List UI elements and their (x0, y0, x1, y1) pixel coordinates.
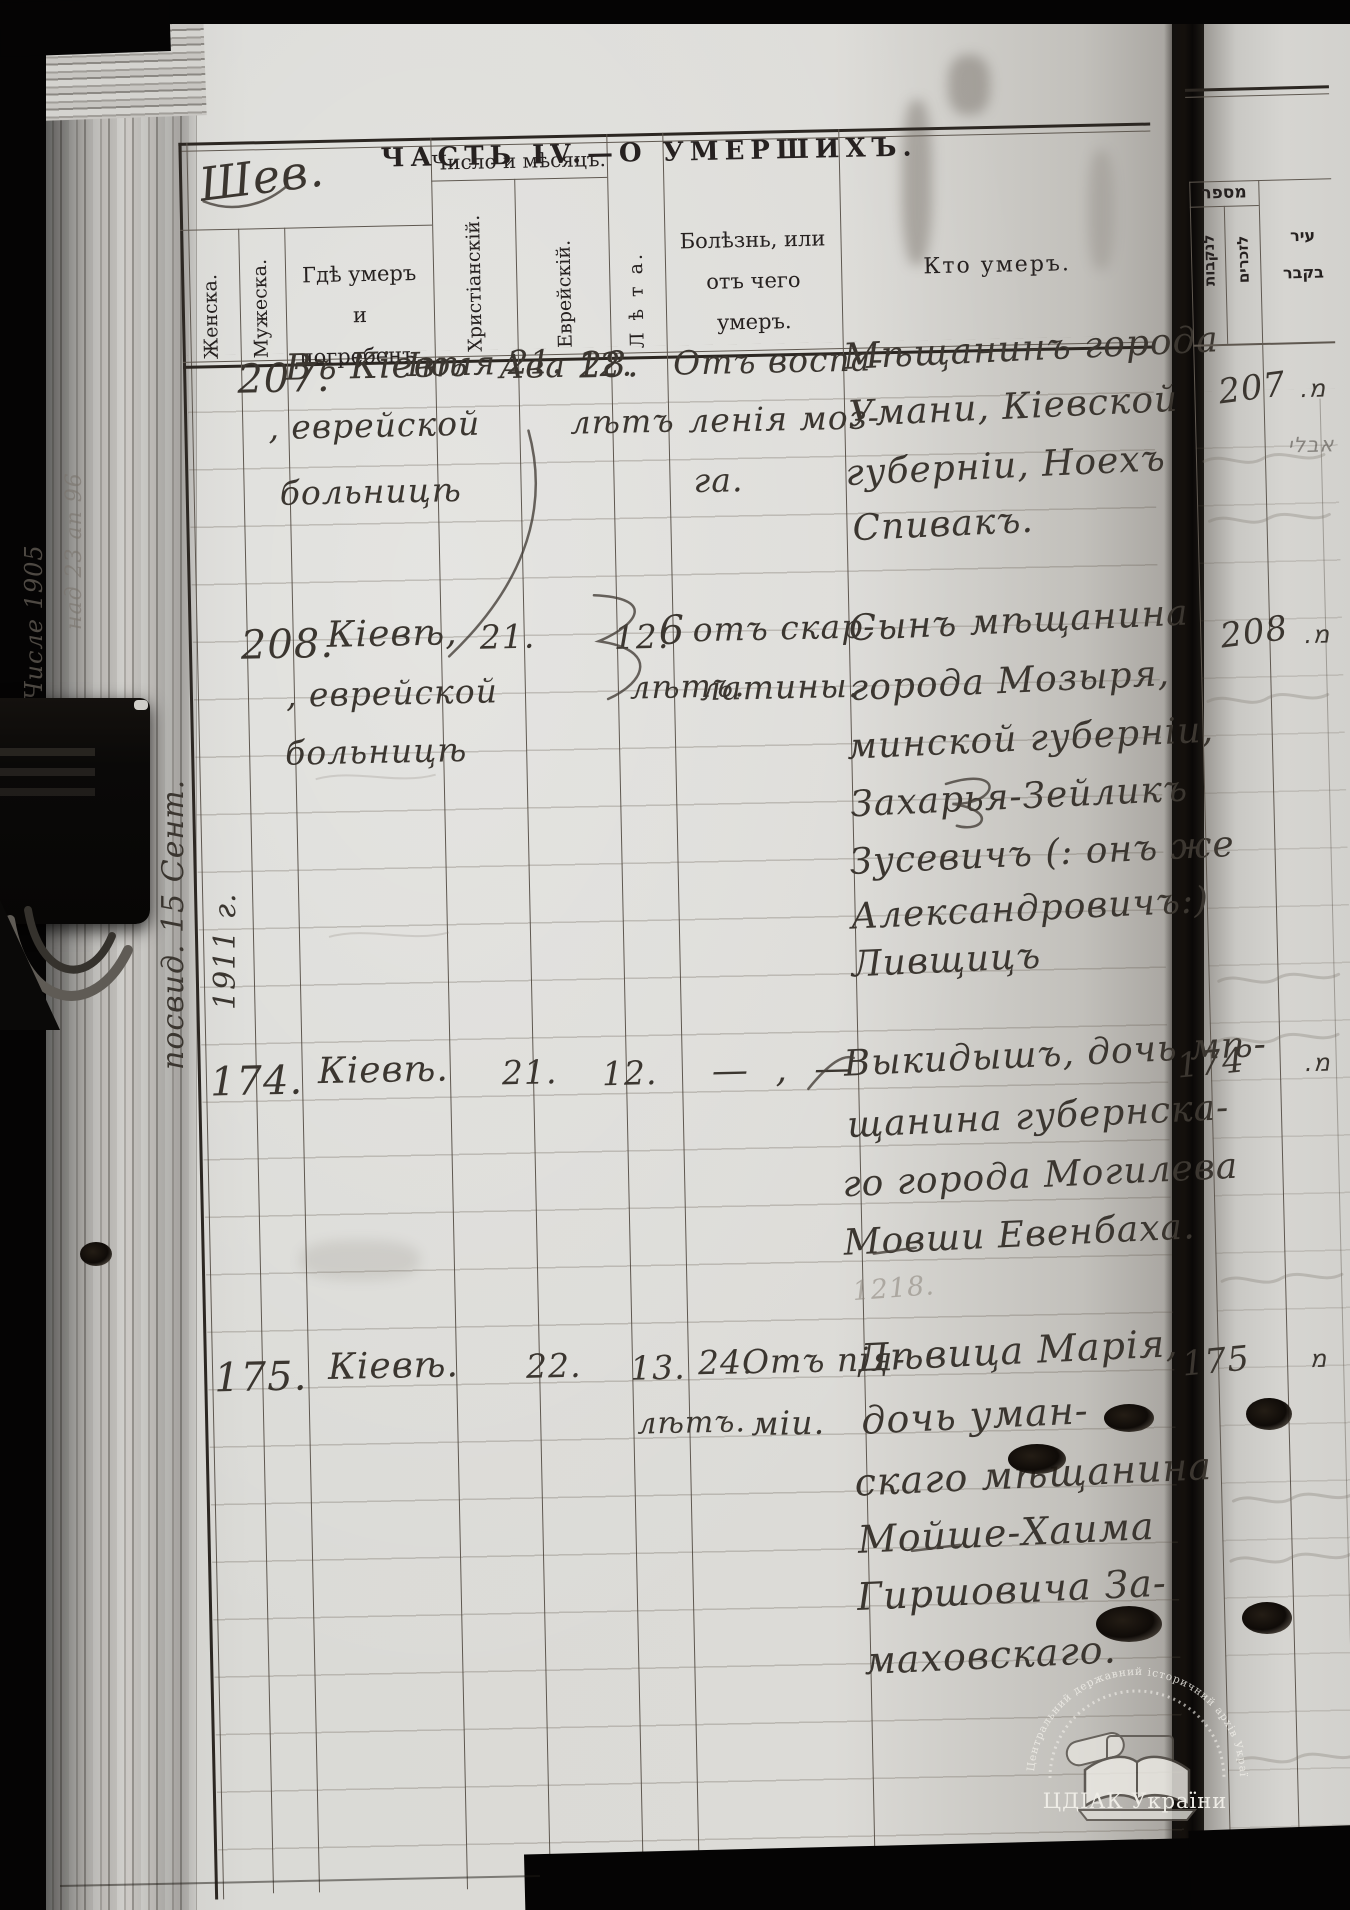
ink-blot (1246, 1398, 1292, 1430)
hebrew-number-header: מספר (1189, 182, 1258, 204)
hebrew-male-header: לזכרים (1233, 229, 1252, 289)
binder-clip-handle (0, 880, 170, 1040)
binder-clip-ridge (0, 748, 95, 756)
archive-watermark-label: ЦДІАК України (1025, 1789, 1245, 1813)
right-frame-top-thin (1185, 93, 1329, 98)
archive-watermark: Центральний державний історичний архів У… (1012, 1630, 1262, 1870)
hebrew-female-header: לנקבות (1199, 230, 1218, 290)
binder-clip-ridge (0, 788, 95, 796)
hebrew-city-header: עיר בקבר (1272, 216, 1334, 291)
right-header-rule (1189, 178, 1331, 182)
archival-scan: ЧАСТЬ IV.—О УМЕРШИХЪ. Женска. Мужеска. Г… (0, 0, 1350, 1910)
ink-blot (80, 1242, 112, 1266)
hebrew-city-line: בקבר (1273, 253, 1334, 291)
binder-clip-glint (134, 700, 148, 710)
ink-blot (1104, 1404, 1154, 1432)
ink-blot (1008, 1444, 1066, 1474)
right-header-bottom (1193, 341, 1335, 346)
bleed-through-ghosts (1192, 378, 1350, 1811)
binder-clip-ridge (0, 768, 95, 776)
right-col-rule (1224, 206, 1228, 344)
hebrew-city-line: עיר (1272, 216, 1333, 254)
right-frame-top (1185, 85, 1329, 92)
